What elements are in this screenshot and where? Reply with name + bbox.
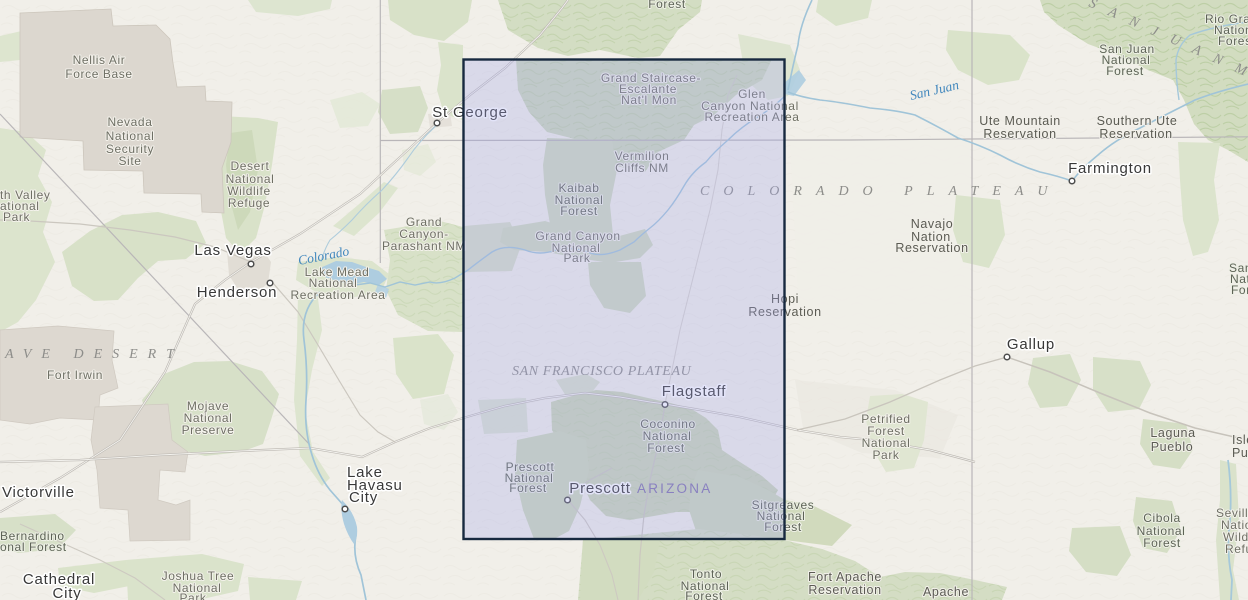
svg-text:Ute Mountain: Ute Mountain [979, 114, 1061, 128]
svg-text:Pueb: Pueb [1232, 446, 1248, 460]
svg-text:Pueblo: Pueblo [1151, 440, 1194, 454]
svg-text:Fort Irwin: Fort Irwin [47, 368, 103, 382]
svg-text:Southern Ute: Southern Ute [1097, 114, 1178, 128]
svg-text:Preserve: Preserve [182, 423, 235, 437]
svg-text:Forest: Forest [1143, 536, 1181, 550]
svg-text:Refug: Refug [1225, 542, 1248, 556]
svg-text:Cibola: Cibola [1143, 511, 1181, 525]
svg-text:City: City [349, 489, 378, 506]
svg-text:For: For [1231, 283, 1248, 297]
svg-text:National: National [106, 129, 155, 143]
svg-text:Desert: Desert [231, 159, 270, 173]
svg-text:Victorville: Victorville [2, 484, 75, 501]
svg-text:Reservation: Reservation [1099, 127, 1172, 141]
svg-text:Nevada: Nevada [108, 115, 153, 129]
svg-text:Park: Park [3, 210, 30, 224]
svg-text:Refuge: Refuge [228, 196, 270, 210]
svg-text:Farmington: Farmington [1068, 160, 1152, 177]
svg-text:Navajo: Navajo [911, 217, 954, 231]
svg-text:Parashant NM: Parashant NM [382, 239, 466, 253]
svg-text:Fores: Fores [1218, 34, 1248, 48]
svg-text:Nellis Air: Nellis Air [73, 53, 126, 67]
svg-text:Park: Park [872, 448, 899, 462]
svg-text:Reservation: Reservation [983, 127, 1056, 141]
svg-text:Fort Apache: Fort Apache [808, 570, 882, 584]
svg-text:City: City [52, 585, 81, 600]
svg-text:onal Forest: onal Forest [0, 540, 67, 554]
svg-text:Park: Park [179, 591, 206, 600]
svg-text:Forest: Forest [648, 0, 686, 11]
svg-text:Henderson: Henderson [197, 284, 278, 301]
svg-text:AVE DESERT: AVE DESERT [4, 347, 184, 362]
svg-text:Forest: Forest [1106, 64, 1144, 78]
svg-text:Apache: Apache [923, 585, 969, 599]
svg-text:Site: Site [118, 154, 141, 168]
svg-text:Force Base: Force Base [65, 67, 132, 81]
svg-text:Recreation Area: Recreation Area [290, 288, 385, 302]
svg-text:Isle: Isle [1232, 433, 1248, 447]
svg-text:Reservation: Reservation [895, 241, 968, 255]
svg-text:Las Vegas: Las Vegas [194, 242, 271, 259]
svg-text:Forest: Forest [685, 589, 723, 600]
svg-text:Reservation: Reservation [808, 583, 881, 597]
svg-text:Gallup: Gallup [1007, 336, 1055, 353]
svg-text:Laguna: Laguna [1150, 426, 1195, 440]
